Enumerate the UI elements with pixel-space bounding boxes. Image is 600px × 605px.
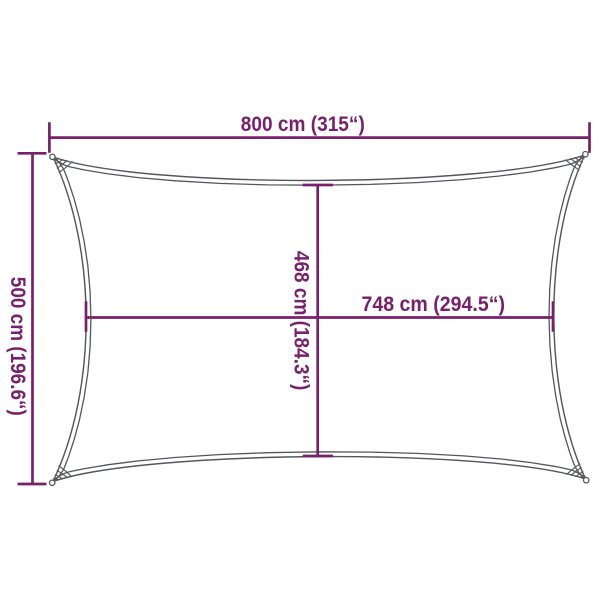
svg-text:748 cm (294.5“): 748 cm (294.5“)	[362, 293, 506, 316]
svg-text:500 cm (196.6“): 500 cm (196.6“)	[6, 277, 29, 416]
svg-text:468 cm (184.3“): 468 cm (184.3“)	[289, 251, 312, 391]
svg-text:800 cm (315“): 800 cm (315“)	[241, 113, 365, 136]
